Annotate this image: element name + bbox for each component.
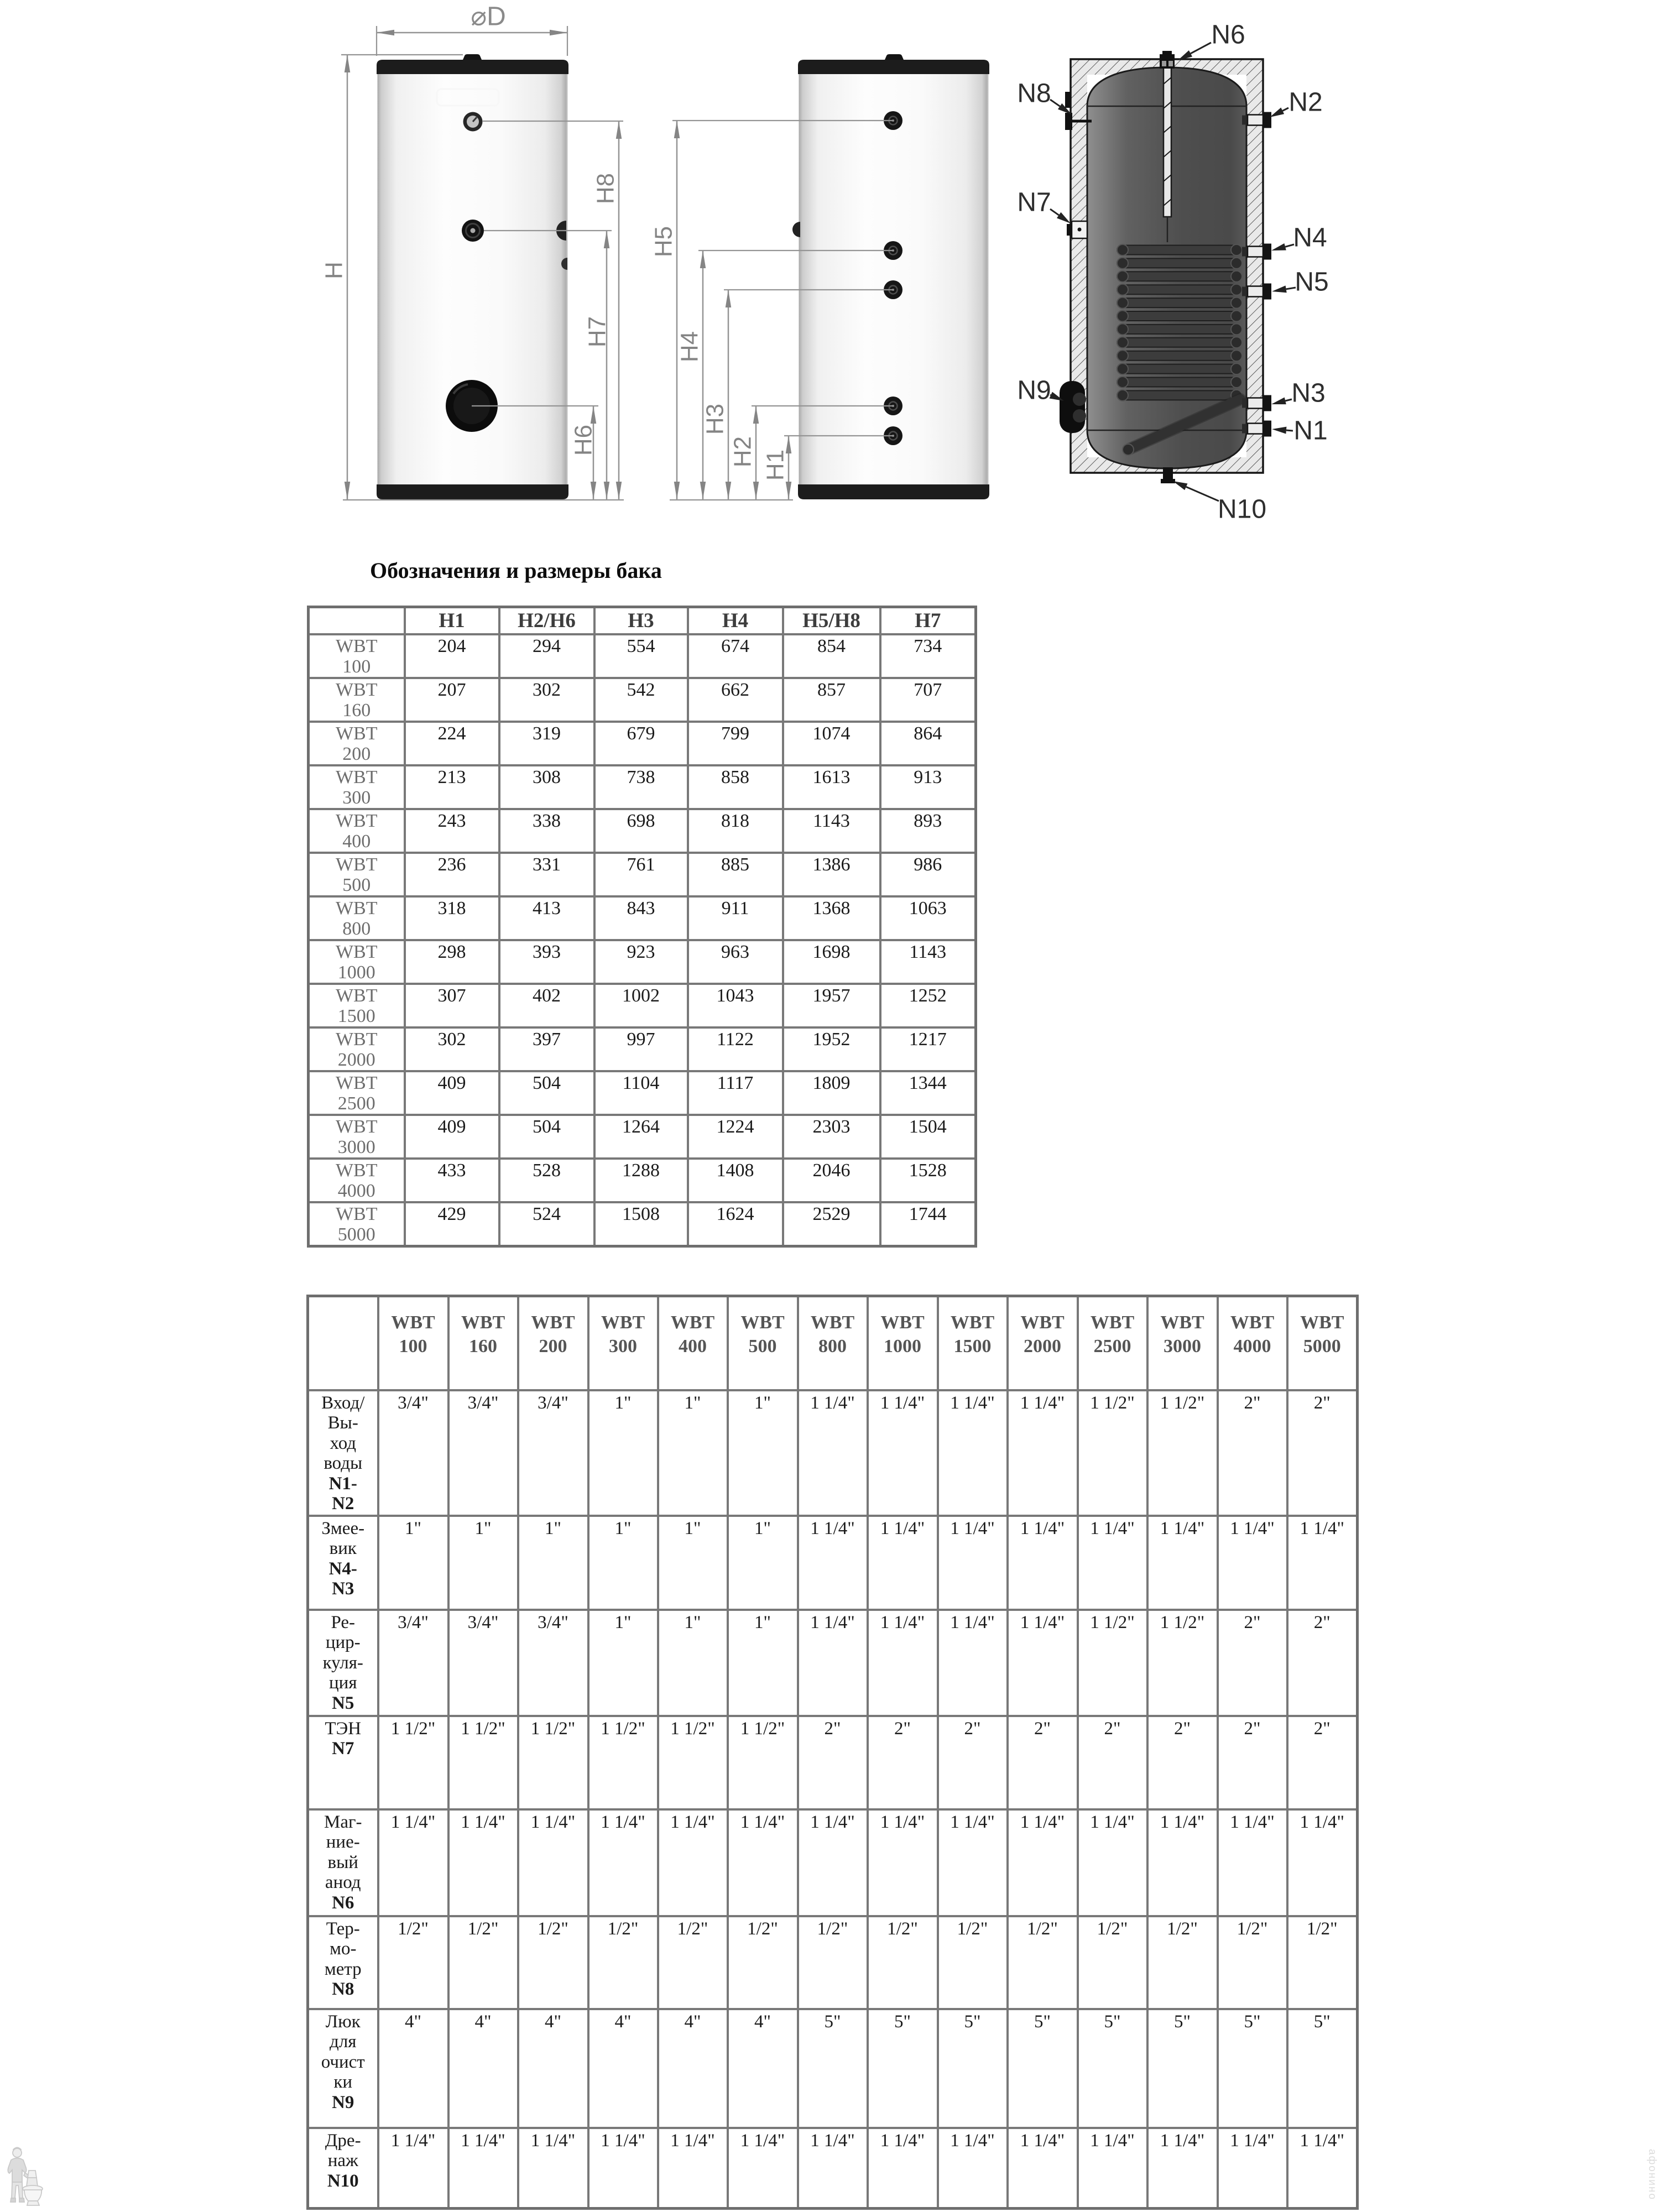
svg-text:H3: H3 [702, 404, 729, 435]
svg-text:N8: N8 [1017, 79, 1051, 108]
svg-text:H7: H7 [584, 316, 611, 347]
svg-text:N2: N2 [1288, 88, 1322, 117]
svg-text:N3: N3 [1291, 379, 1325, 408]
svg-text:H5: H5 [650, 226, 677, 257]
svg-text:H6: H6 [570, 425, 597, 456]
svg-text:N4: N4 [1293, 223, 1327, 253]
svg-text:H4: H4 [676, 331, 703, 362]
svg-text:H2: H2 [729, 436, 757, 467]
svg-text:N9: N9 [1017, 376, 1051, 405]
svg-text:N5: N5 [1295, 268, 1328, 297]
svg-text:N10: N10 [1218, 495, 1266, 524]
svg-text:H1: H1 [762, 450, 789, 481]
svg-text:H: H [321, 262, 348, 279]
svg-text:N7: N7 [1017, 188, 1051, 217]
svg-text:N6: N6 [1211, 20, 1245, 50]
svg-text:⌀D: ⌀D [471, 2, 506, 32]
svg-text:H8: H8 [592, 173, 619, 204]
svg-text:N1: N1 [1293, 416, 1327, 446]
